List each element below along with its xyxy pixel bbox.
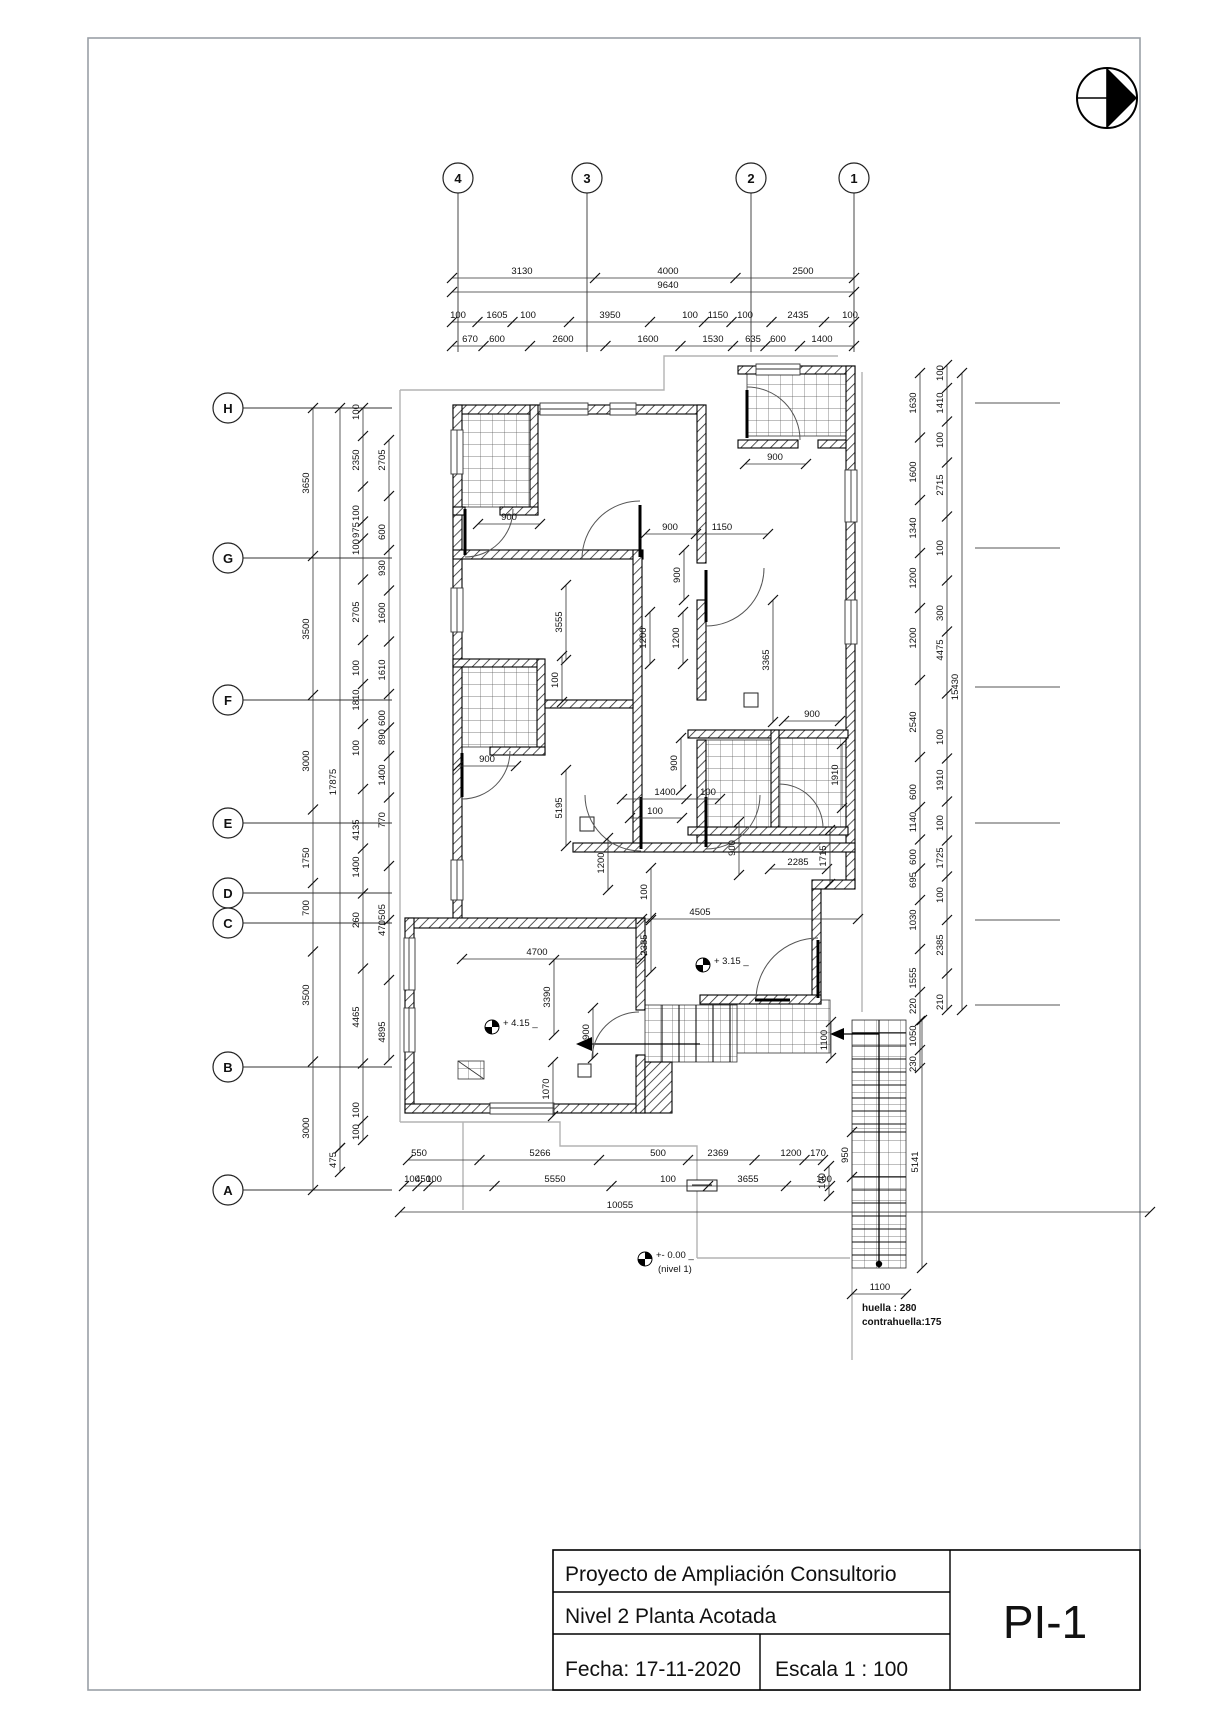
dim-label: 260 [351, 912, 362, 928]
dim-label: 100 [935, 432, 946, 448]
dim-label: 2385 [639, 934, 650, 955]
dim-label: 100 [935, 729, 946, 745]
dim-label: 950 [840, 1147, 851, 1163]
dim-label: 1200 [596, 852, 607, 873]
dim-label: 1050 [908, 1025, 919, 1046]
level-label: +- 0.00 _ [656, 1250, 694, 1261]
stair-note-contrahuella: contrahuella:175 [862, 1317, 942, 1328]
stair-note-huella: huella : 280 [862, 1303, 917, 1314]
dim-label: 2385 [935, 934, 946, 955]
dim-label: 1400 [351, 856, 362, 877]
title-block: Proyecto de Ampliación Consultorio Nivel… [553, 1550, 1140, 1690]
dim-label: 600 [770, 334, 786, 345]
window-icon [451, 430, 463, 474]
dim-label: 600 [377, 710, 388, 726]
dim-label: 2705 [351, 601, 362, 622]
dim-label: 1400 [377, 764, 388, 785]
dim-label: 600 [908, 849, 919, 865]
dim-label: 635 [745, 334, 761, 345]
level-label: + 3.15 _ [714, 956, 749, 967]
dim-label: 3500 [301, 618, 312, 639]
grid-bubble-label: B [223, 1060, 232, 1075]
dim-label: 3950 [599, 310, 620, 321]
dim-label: 1200 [780, 1148, 801, 1159]
dim-label: 505 [377, 904, 388, 920]
dim-label: 300 [935, 605, 946, 621]
dim-label: 475 [328, 1152, 339, 1168]
grid-bubble-label: E [224, 816, 233, 831]
level-sublabel: (nivel 1) [658, 1264, 692, 1275]
dim-label: 1100 [819, 1030, 830, 1050]
dim-label: 2500 [792, 266, 813, 277]
dim-label: 1410 [935, 392, 946, 413]
dim-label: 100 [520, 310, 536, 321]
dim-label: 1400 [654, 787, 675, 798]
dim-label: 100 [351, 404, 362, 420]
sheet-code: PI-1 [1003, 1596, 1087, 1648]
dim-label: 100 [935, 365, 946, 381]
sheet-scale: Escala 1 : 100 [775, 1658, 908, 1681]
dim-label: 2705 [377, 449, 388, 470]
dim-label: 1070 [541, 1078, 552, 1099]
dim-label: 100 [351, 539, 362, 555]
window-icon [540, 403, 588, 415]
project-title: Proyecto de Ampliación Consultorio [565, 1563, 897, 1586]
dim-label: 900 [479, 754, 495, 765]
dim-label: 1400 [811, 334, 832, 345]
dim-label: 2369 [707, 1148, 728, 1159]
dim-label: 100 [426, 1174, 442, 1185]
dim-label: 2435 [787, 310, 808, 321]
dim-label: 4475 [935, 639, 946, 660]
drawing-sheet: 4321HGFEDCBA 313040002500964010016051003… [0, 0, 1206, 1710]
dim-label: 1600 [637, 334, 658, 345]
floor-plan-canvas: 4321HGFEDCBA 313040002500964010016051003… [0, 0, 1206, 1710]
dim-label: 100 [450, 310, 466, 321]
dim-label: 1910 [935, 769, 946, 790]
dim-label: 2600 [552, 334, 573, 345]
dim-label: 900 [662, 522, 678, 533]
dim-label: 1725 [935, 847, 946, 868]
window-icon [404, 1008, 415, 1052]
dim-label: 1200 [638, 627, 649, 648]
dim-label: 1140 [908, 812, 919, 832]
dim-label: 1600 [908, 461, 919, 482]
dim-label: 210 [935, 994, 946, 1010]
dim-label: 900 [767, 452, 783, 463]
dim-label: 670 [462, 334, 478, 345]
dim-label: 230 [908, 1056, 919, 1072]
dim-label: 700 [301, 900, 312, 916]
dim-label: 900 [727, 840, 738, 856]
dim-label: 100 [817, 1173, 828, 1189]
dim-label: 100 [737, 310, 753, 321]
dim-label: 100 [351, 1102, 362, 1118]
dim-label: 4465 [351, 1006, 362, 1027]
dim-label: 1715 [818, 845, 829, 866]
grid-bubble-label: F [224, 693, 232, 708]
dim-label: 100 [935, 815, 946, 831]
dim-label: 4505 [689, 907, 710, 918]
dim-label: 100 [700, 787, 716, 798]
grid-bubble-label: G [223, 551, 233, 566]
dim-label: 1030 [908, 909, 919, 930]
dim-label: 100 [647, 806, 663, 817]
dim-label: 9640 [657, 280, 678, 291]
grid-bubble-label: D [223, 886, 232, 901]
dim-label: 890 [377, 729, 388, 745]
dim-label: 1610 [377, 659, 388, 680]
bathroom-tiles-mid-right-1 [697, 740, 771, 827]
dim-label: 100 [351, 505, 362, 521]
sheet-date: Fecha: 17-11-2020 [565, 1658, 741, 1681]
dim-label: 4135 [351, 819, 362, 840]
dim-label: 2285 [787, 857, 808, 868]
dim-label: 3390 [542, 986, 553, 1007]
dim-label: 4895 [377, 1021, 388, 1042]
dim-label: 10055 [607, 1200, 633, 1211]
dim-label: 100 [842, 310, 858, 321]
level-label: + 4.15 _ [503, 1018, 538, 1029]
grid-bubble-label: 3 [583, 171, 590, 186]
dim-label: 770 [377, 812, 388, 828]
dim-label: 100 [351, 740, 362, 756]
north-symbol-icon [1077, 68, 1137, 128]
dim-label: 975 [351, 522, 362, 538]
dim-label: 1605 [486, 310, 507, 321]
dim-label: 170 [810, 1148, 826, 1159]
dim-label: 1530 [702, 334, 723, 345]
window-icon [756, 364, 800, 375]
dim-label: 500 [650, 1148, 666, 1159]
dim-label: 100 [935, 540, 946, 556]
window-icon [404, 938, 415, 990]
bathroom-tiles-mid-left [460, 667, 537, 747]
dim-label: 1630 [908, 392, 919, 413]
window-icon [451, 588, 463, 632]
dim-label: 1200 [671, 627, 682, 648]
dim-label: 900 [669, 755, 680, 771]
dim-label: 1910 [830, 764, 841, 785]
dim-label: 1600 [377, 602, 388, 623]
dim-label: 2540 [908, 711, 919, 732]
dim-label: 3365 [761, 649, 772, 670]
dim-label: 470 [377, 920, 388, 936]
dim-label: 4700 [526, 947, 547, 958]
grid-bubble-label: A [223, 1183, 233, 1198]
dim-label: 1200 [908, 567, 919, 588]
dim-label: 2715 [935, 474, 946, 495]
inner-stair-tiles [645, 1005, 737, 1062]
dim-label: 900 [804, 709, 820, 720]
dim-label: 17875 [328, 769, 339, 795]
dim-label: 600 [489, 334, 505, 345]
dim-label: 3000 [301, 1117, 312, 1138]
dim-label: 100 [660, 1174, 676, 1185]
dim-label: 100 [351, 660, 362, 676]
grid-bubble-label: 2 [747, 171, 754, 186]
dim-label: 550 [411, 1148, 427, 1159]
grid-bubble-label: C [223, 916, 233, 931]
dim-label: 3650 [301, 472, 312, 493]
dim-label: 1200 [908, 627, 919, 648]
dim-label: 100 [639, 884, 650, 900]
dim-label: 600 [377, 524, 388, 540]
window-icon [610, 403, 636, 415]
dim-label: 100 [550, 672, 561, 688]
window-icon [845, 600, 857, 644]
dim-label: 695 [908, 872, 919, 888]
dim-label: 3555 [554, 611, 565, 632]
dim-label: 600 [908, 784, 919, 800]
window-icon [845, 470, 857, 522]
grid-bubble-label: 1 [850, 171, 857, 186]
dim-label: 900 [581, 1024, 592, 1040]
dim-label: 1810 [351, 689, 362, 710]
dim-label: 3000 [301, 750, 312, 771]
dim-label: 1150 [708, 310, 728, 321]
dim-label: 3130 [511, 266, 532, 277]
dim-label: 5141 [910, 1151, 921, 1172]
dim-label: 1340 [908, 517, 919, 538]
dim-label: 1150 [712, 522, 732, 533]
dim-label: 220 [908, 998, 919, 1014]
bathroom-tiles-top-right [747, 374, 846, 436]
sheet-subtitle: Nivel 2 Planta Acotada [565, 1605, 777, 1628]
grid-bubble-label: H [223, 401, 232, 416]
window-icon [490, 1103, 554, 1114]
dim-label: 5266 [529, 1148, 550, 1159]
dim-label: 3500 [301, 984, 312, 1005]
dim-label: 2350 [351, 449, 362, 470]
dim-label: 930 [377, 560, 388, 576]
dim-label: 1100 [870, 1282, 890, 1293]
dim-label: 3655 [737, 1174, 758, 1185]
dim-label: 100 [682, 310, 698, 321]
dim-label: 1750 [301, 847, 312, 868]
dim-label: 100 [351, 1124, 362, 1140]
window-icon [451, 860, 463, 900]
grid-bubble-label: 4 [454, 171, 462, 186]
dim-label: 100 [935, 887, 946, 903]
landing-tiles [737, 1000, 830, 1053]
dim-label: 1555 [908, 967, 919, 988]
dim-label: 900 [672, 567, 683, 583]
dim-label: 4000 [657, 266, 678, 277]
dim-label: 15430 [950, 674, 961, 700]
dim-label: 5550 [544, 1174, 565, 1185]
page-border [88, 38, 1140, 1690]
dim-label: 900 [501, 512, 517, 523]
bathroom-tiles-top-left [462, 413, 530, 507]
dim-label: 5195 [554, 797, 565, 818]
